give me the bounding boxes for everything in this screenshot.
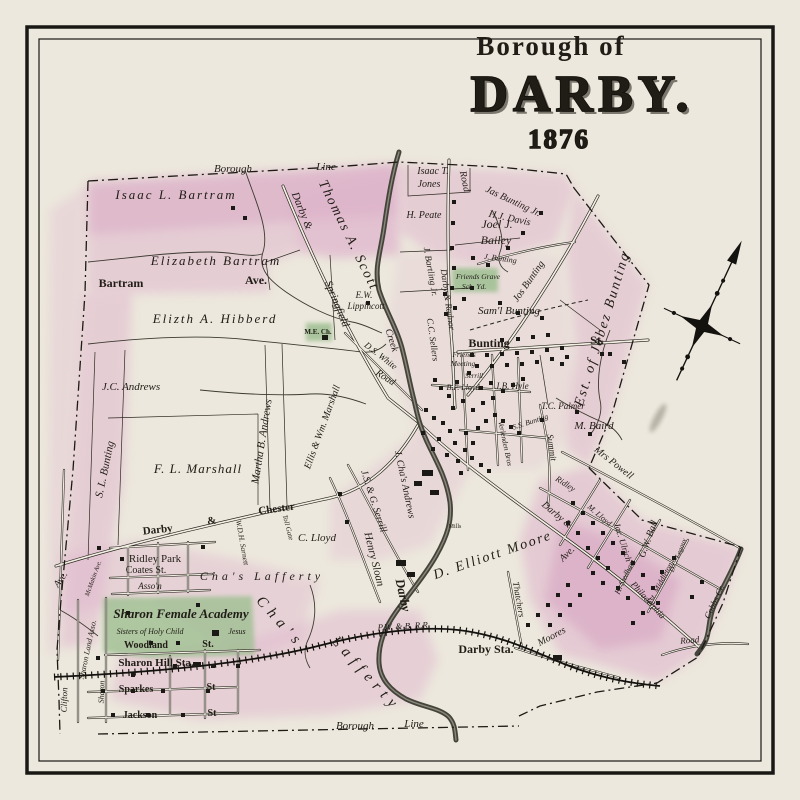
label-friends-meeting: Friends: [451, 350, 475, 359]
label-bunting-st: Bunting: [468, 336, 509, 350]
label-chas-lafferty: Cha's Lafferty: [200, 569, 324, 583]
title-borough-of: Borough of: [476, 31, 625, 61]
label-ridley-park: Ridley Park: [129, 553, 182, 565]
label-m-baird: M. Baird: [573, 420, 614, 432]
label-isaac-jones2: Jones: [418, 179, 441, 190]
label-darby-chester2: &: [206, 515, 216, 528]
label-friends-grave2: Sch. Yd.: [462, 282, 487, 291]
label-hibberd: Elizth A. Hibberd: [152, 311, 278, 326]
label-h-peate: H. Peate: [406, 210, 443, 221]
label-ew-lippincott: E.W.: [355, 290, 373, 300]
label-borough-line-bottom: Borough: [336, 720, 375, 732]
label-jackson-st2: St: [208, 708, 218, 719]
label-sparkes-st: Sparkes: [119, 684, 154, 695]
label-elizabeth-bartram: Elizabeth Bartram: [150, 253, 281, 268]
label-bf-lloyd: B.F. Lloyd: [447, 383, 481, 392]
label-darby-station: Darby Sta.: [458, 642, 513, 656]
label-borough-line-bottom2: Line: [403, 718, 424, 730]
label-saml-bunting: Sam'l Bunting: [478, 305, 540, 317]
title-darby: DARBY.: [470, 66, 693, 123]
label-isaac-bartram: Isaac L. Bartram: [114, 187, 236, 202]
label-joel-bailey2: Bailey: [481, 233, 512, 247]
label-clifton-ave: Clifton: [59, 687, 70, 713]
label-bartram-ave2: Ave.: [245, 273, 267, 287]
label-tc-palmer: T.C. Palmer: [541, 401, 585, 411]
title-year: 1876: [528, 124, 590, 154]
label-bunting-st2: St.: [590, 333, 604, 347]
label-jb-hyle: J.B. Hyle: [495, 381, 528, 391]
label-bartram-ave: Bartram: [99, 276, 144, 290]
label-sisters2: Jesus: [228, 627, 245, 636]
label-borough-line-top2: Line: [315, 161, 336, 173]
label-road-bottom-right: Road: [679, 634, 700, 646]
label-jc-andrews: J.C. Andrews: [102, 381, 160, 393]
label-sisters: Sisters of Holy Child: [117, 627, 185, 636]
label-ew-lippincott2: Lippincott: [346, 301, 385, 311]
label-friends-grave: Friends Grave: [455, 272, 501, 281]
label-c-lloyd: C. Lloyd: [298, 532, 336, 544]
label-coates-st: Coates St.: [126, 565, 167, 576]
label-asson: Asso'n: [137, 581, 162, 591]
label-joel-bailey: Joel J.: [481, 217, 512, 231]
label-woodland-st2: St.: [202, 639, 214, 650]
darby-map-svg: Borough Line Isaac L. Bartram Elizabeth …: [0, 0, 800, 800]
label-sharon-hill-station: Sharon Hill Sta.: [118, 657, 194, 669]
label-sparkes-st2: St: [207, 682, 217, 693]
label-mills: Mills: [449, 524, 462, 530]
label-woodland-st: Woodland: [124, 640, 168, 651]
label-fl-marshall: F. L. Marshall: [153, 461, 242, 476]
map-page: Borough Line Isaac L. Bartram Elizabeth …: [0, 0, 800, 800]
label-me-church: M.E. Ch.: [304, 328, 331, 336]
label-sharon-st: Sharon: [97, 680, 107, 703]
label-borough-line-top: Borough: [214, 163, 253, 175]
label-friends-meeting2: Meeting: [450, 359, 476, 368]
label-jackson-st: Jackson: [123, 710, 158, 721]
label-serrill-st: Serrill: [465, 372, 483, 380]
label-sharon-academy: Sharon Female Academy: [113, 606, 249, 621]
label-isaac-jones: Isaac T.: [416, 166, 448, 177]
